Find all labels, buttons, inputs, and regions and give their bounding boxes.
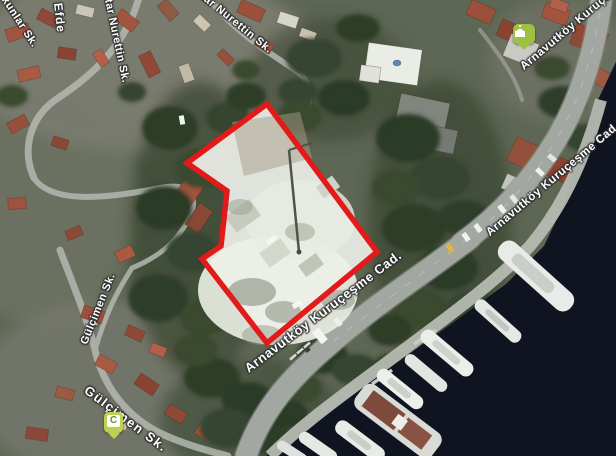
poi-pin-c[interactable]: C [104, 412, 123, 433]
satellite-map-canvas[interactable]: kunlar Sk. Efde Muhtar Nurettin Sk. Muht… [0, 0, 616, 456]
street-label-efde: Efde [51, 2, 68, 33]
church-pin[interactable] [513, 24, 535, 44]
poi-pin-letter: C [107, 415, 120, 427]
church-icon [513, 24, 527, 37]
